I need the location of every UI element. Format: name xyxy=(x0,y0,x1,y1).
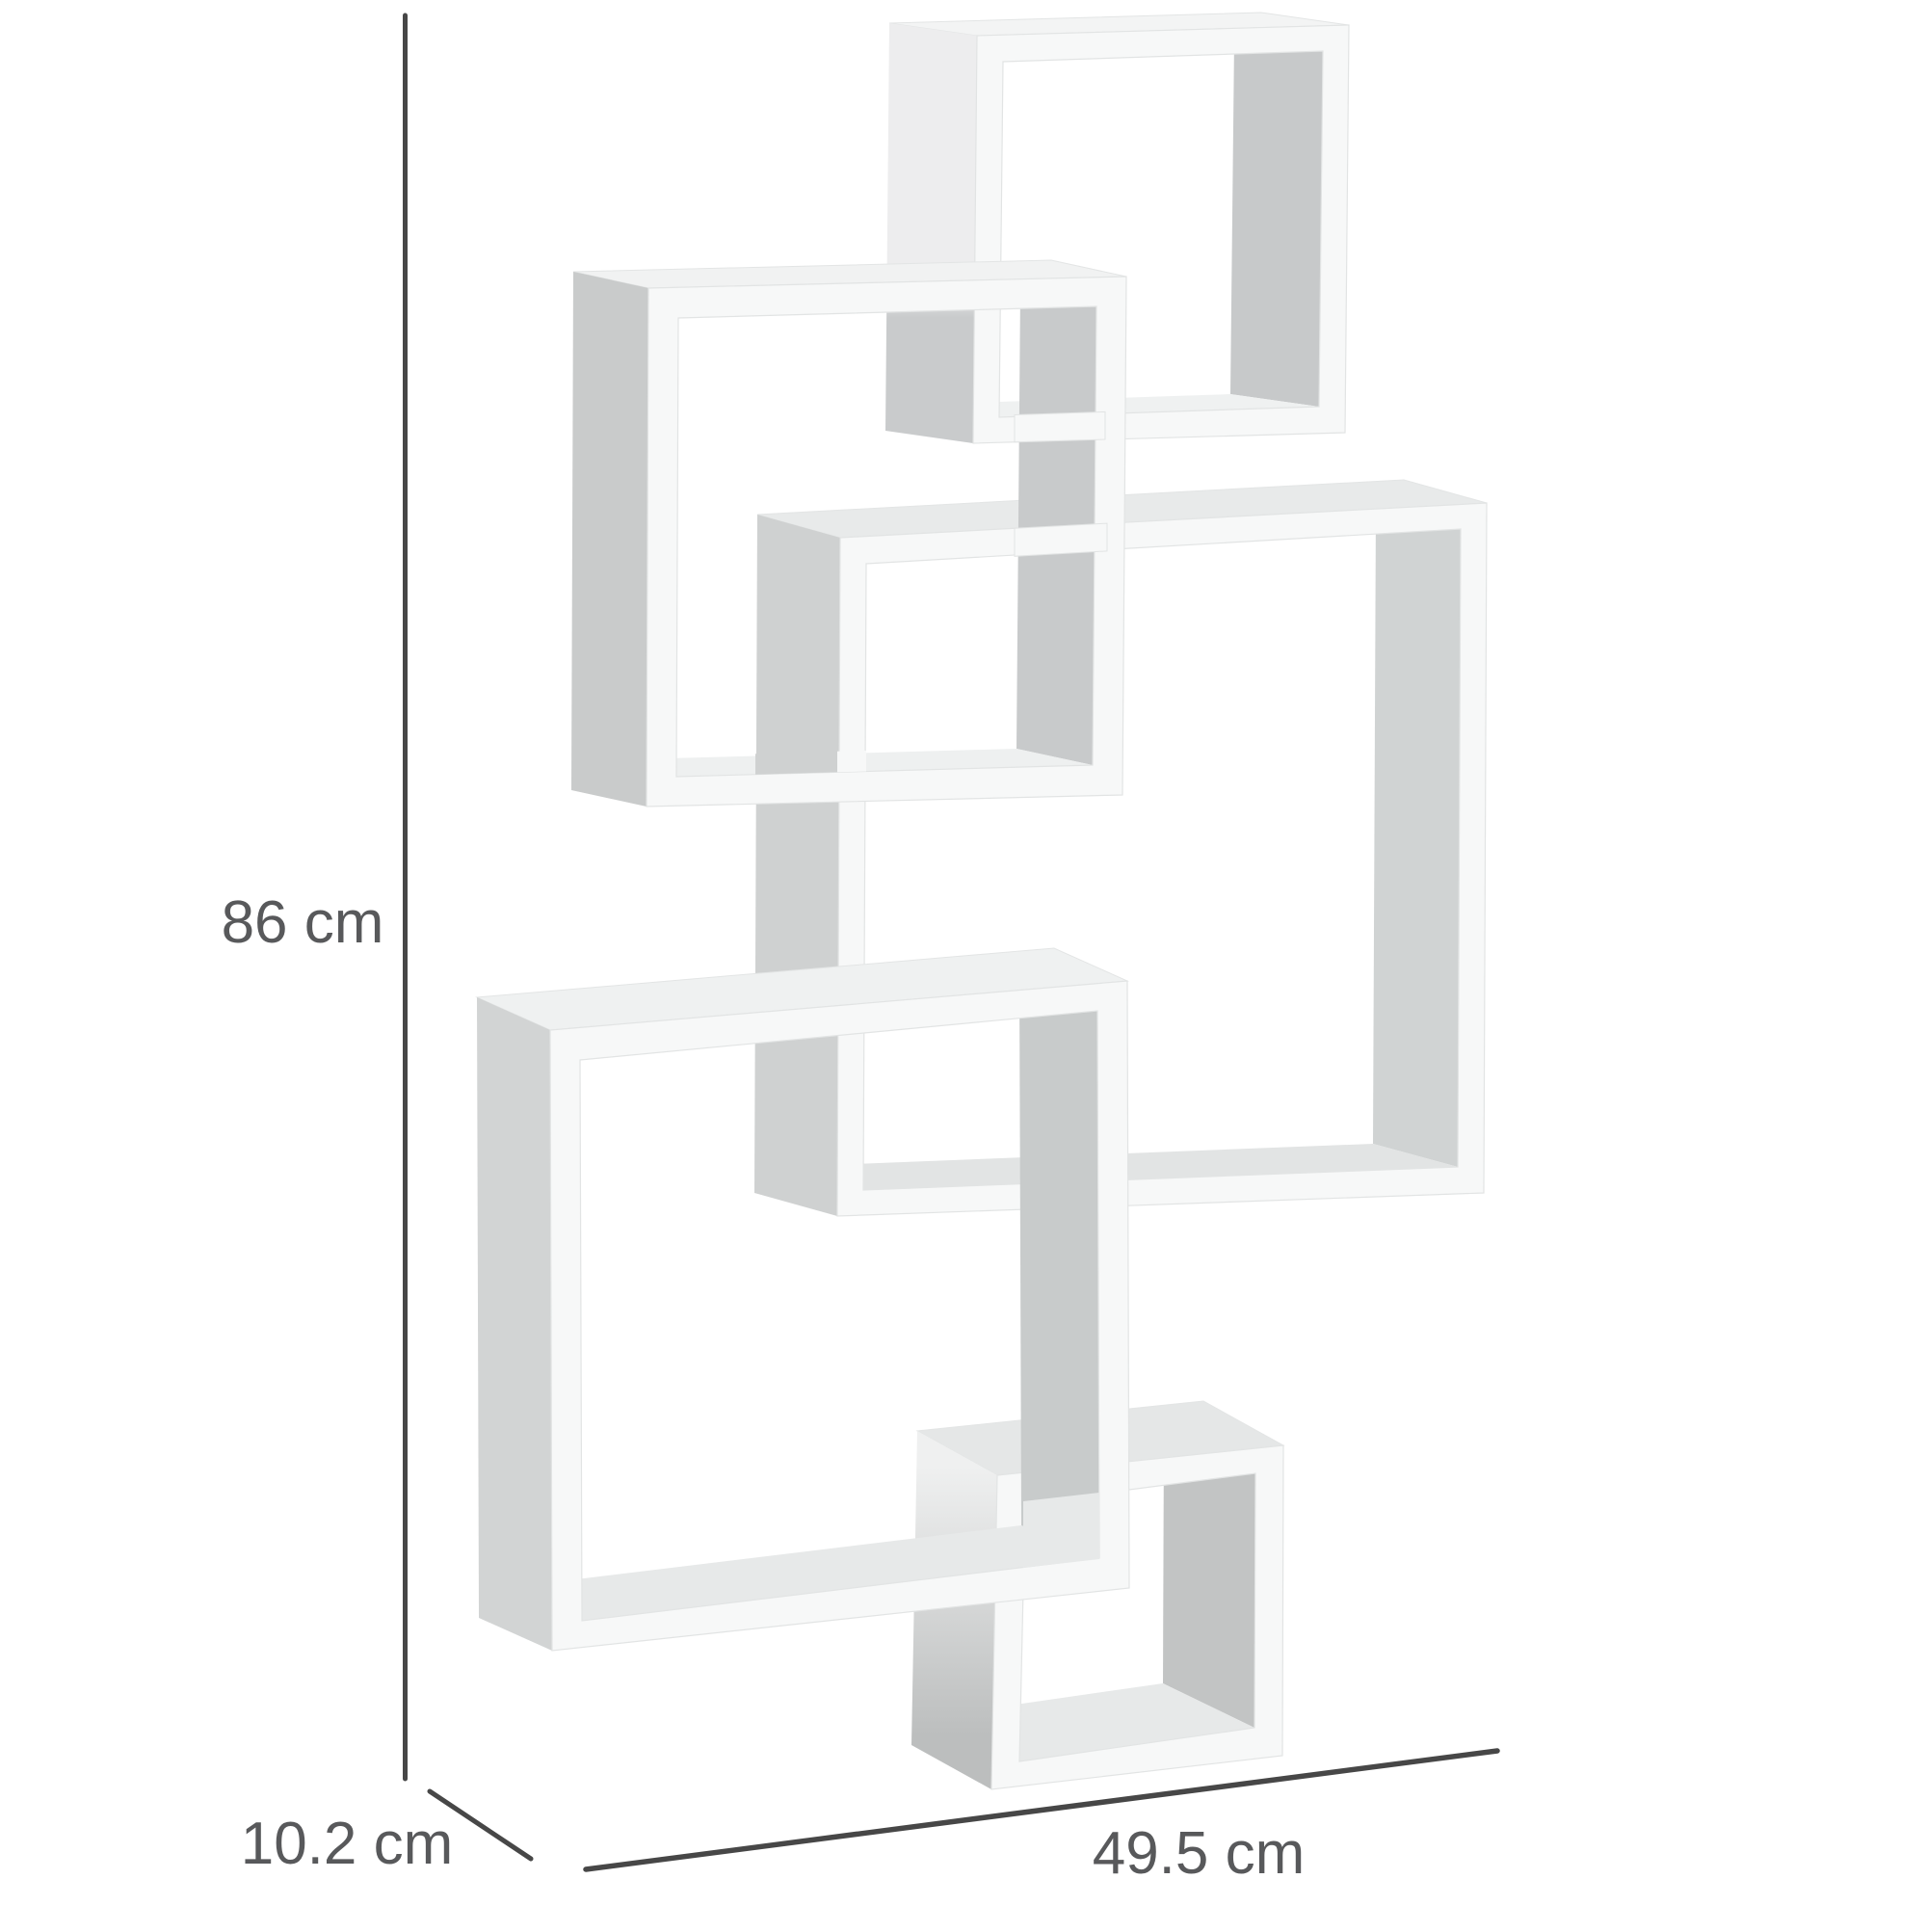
svg-text:10.2 cm: 10.2 cm xyxy=(241,1811,454,1877)
svg-text:49.5 cm: 49.5 cm xyxy=(1093,1820,1306,1887)
svg-text:86 cm: 86 cm xyxy=(222,889,384,956)
